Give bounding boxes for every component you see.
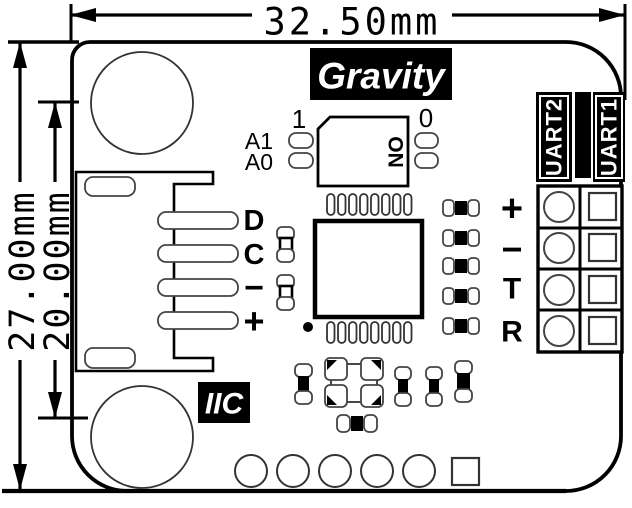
pad: [393, 194, 401, 215]
resistor: [277, 227, 294, 262]
dim-height-outer: 27.00mm: [3, 42, 43, 490]
mounting-hole-bottom-left: [91, 386, 193, 488]
pad: [468, 230, 479, 246]
pad: [455, 361, 472, 374]
resistor: [443, 318, 479, 334]
iic-pin-pad-c: [158, 245, 238, 262]
through-hole-pad: [361, 455, 393, 487]
brand-label: Gravity: [310, 48, 452, 100]
capacitor: [455, 361, 472, 402]
pad: [426, 393, 442, 406]
through-hole-pad-square: [452, 458, 479, 485]
iic-label: IIC: [198, 382, 250, 423]
arrow-down-icon: [13, 464, 27, 490]
through-hole-pad: [277, 455, 309, 487]
resistor-body: [455, 319, 467, 333]
iic-pin-label-c: C: [244, 239, 265, 271]
resistor-body: [351, 416, 363, 431]
pad: [338, 322, 346, 343]
pad: [382, 322, 390, 343]
pad: [327, 322, 335, 343]
switch-pad: [289, 133, 313, 148]
terminal-hole-square: [589, 234, 616, 261]
pad: [277, 249, 294, 262]
pcb-dimension-drawing: 32.50mm 27.00mm 20.00mm Gravity D C − +: [0, 0, 632, 508]
pad: [360, 194, 368, 215]
pad: [277, 297, 294, 310]
pad: [371, 194, 379, 215]
terminal-hole-square: [589, 317, 616, 344]
board-drawing-svg: 32.50mm 27.00mm 20.00mm Gravity D C − +: [0, 0, 632, 508]
pad: [468, 288, 479, 304]
ic-pin1-dot: [303, 322, 313, 332]
dim-height-inner-text: 20.00mm: [38, 190, 78, 352]
pad: [327, 194, 335, 215]
pad: [382, 194, 390, 215]
connector-tab-pad-bottom: [85, 348, 135, 368]
uart-pin-label-minus: −: [501, 229, 522, 270]
switch-pad: [289, 153, 313, 168]
arrow-down-icon: [48, 392, 62, 418]
iic-pin-label-d: D: [244, 205, 265, 237]
terminal-hole-square: [589, 276, 616, 303]
resistor-body: [429, 379, 439, 394]
switch-pos1-label: 1: [292, 104, 306, 134]
arrow-up-icon: [48, 102, 62, 128]
pad: [426, 367, 442, 380]
pad: [455, 389, 472, 402]
pad: [395, 367, 411, 380]
pad: [443, 230, 454, 246]
switch-pad: [415, 133, 438, 148]
through-hole-pad: [403, 455, 435, 487]
mounting-hole-top-left: [91, 52, 193, 154]
iic-pin-pad-minus: [158, 279, 238, 296]
resistor-body: [455, 231, 467, 245]
resistor-body: [298, 376, 309, 392]
resistor-body: [398, 379, 408, 394]
switch-pos0-label: 0: [419, 103, 433, 133]
resistor-body: [455, 259, 467, 273]
crystal: [325, 358, 383, 407]
dim-width-text: 32.50mm: [264, 1, 441, 44]
arrow-right-icon: [599, 8, 625, 22]
pad: [468, 200, 479, 216]
through-hole-pad: [319, 455, 351, 487]
pad: [468, 318, 479, 334]
pad: [349, 194, 357, 215]
uart1-label-text: UART1: [597, 98, 622, 176]
uart2-label-text: UART2: [542, 98, 567, 176]
iic-pin-pad-plus: [158, 312, 238, 329]
pad: [393, 322, 401, 343]
resistor: [443, 288, 479, 304]
terminal-hole-round: [544, 192, 574, 222]
terminal-hole-round: [544, 275, 574, 305]
uart-pin-label-plus: +: [501, 188, 523, 230]
pad: [338, 194, 346, 215]
addr-a0-label: A0: [245, 149, 273, 175]
connector-tab-pad-top: [85, 177, 135, 196]
arrow-left-icon: [70, 8, 96, 22]
terminal-hole-square: [589, 193, 616, 220]
pad: [349, 322, 357, 343]
uart1-label: UART1: [593, 92, 625, 182]
dim-width: 32.50mm: [70, 1, 625, 44]
through-hole-pad: [235, 455, 267, 487]
resistor-body: [455, 201, 467, 215]
pad: [395, 393, 411, 406]
uart-pin-label-t: T: [503, 273, 521, 306]
terminal-hole-round: [544, 316, 574, 346]
pad: [337, 415, 350, 432]
terminal-hole-round: [544, 233, 574, 263]
resistor: [443, 200, 479, 216]
pad: [468, 258, 479, 274]
iic-pin-label-plus: +: [243, 301, 264, 342]
capacitor-body: [457, 373, 470, 390]
pad: [404, 194, 412, 215]
dim-height-outer-text: 27.00mm: [3, 190, 43, 352]
uart-pin-label-r: R: [501, 316, 523, 349]
resistor: [443, 258, 479, 274]
resistor: [277, 275, 294, 310]
pad: [364, 415, 377, 432]
uart2-label: UART2: [536, 92, 572, 182]
uart-divider-bar: [575, 92, 591, 178]
switch-pad: [415, 153, 438, 168]
resistor: [443, 230, 479, 246]
pad: [443, 200, 454, 216]
iic-pin-pad-d: [158, 212, 238, 229]
pad: [295, 391, 312, 404]
pad: [443, 258, 454, 274]
pad: [295, 364, 312, 377]
resistor-body: [455, 289, 467, 303]
pad: [404, 322, 412, 343]
uart-pin-labels: + − T R: [501, 188, 523, 349]
pad: [443, 318, 454, 334]
pad: [360, 322, 368, 343]
iic-label-text: IIC: [205, 388, 245, 421]
brand-label-text: Gravity: [317, 56, 447, 97]
pad: [443, 288, 454, 304]
switch-on-label: ON: [384, 136, 407, 168]
ic-body: [315, 221, 422, 317]
pad: [371, 322, 379, 343]
arrow-up-icon: [13, 42, 27, 68]
resistor: [337, 415, 377, 432]
uart-terminal-block: [538, 186, 622, 352]
